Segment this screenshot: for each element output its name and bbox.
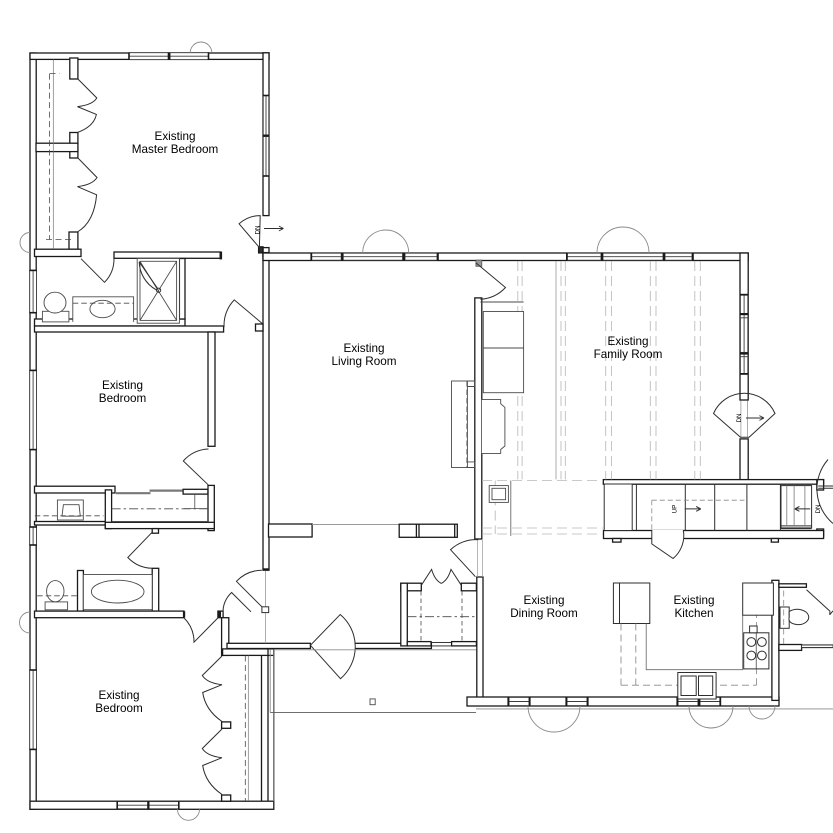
svg-text:DN: DN	[736, 413, 743, 423]
svg-text:Existing: Existing	[608, 335, 649, 348]
svg-text:Existing: Existing	[99, 689, 140, 702]
svg-text:Existing: Existing	[102, 379, 143, 392]
svg-text:UP: UP	[672, 505, 679, 514]
svg-text:Bedroom: Bedroom	[95, 702, 142, 715]
svg-text:Living Room: Living Room	[332, 355, 397, 368]
svg-text:Bedroom: Bedroom	[99, 392, 146, 405]
svg-text:Family Room: Family Room	[594, 348, 663, 361]
svg-text:Kitchen: Kitchen	[675, 607, 714, 620]
svg-text:Master Bedroom: Master Bedroom	[132, 143, 218, 156]
svg-text:Existing: Existing	[674, 594, 715, 607]
svg-text:Dining Room: Dining Room	[510, 607, 578, 620]
svg-text:Existing: Existing	[524, 594, 565, 607]
svg-text:Existing: Existing	[155, 130, 196, 143]
svg-text:Existing: Existing	[344, 342, 385, 355]
svg-text:DN: DN	[815, 504, 822, 514]
svg-text:DN: DN	[255, 225, 262, 235]
